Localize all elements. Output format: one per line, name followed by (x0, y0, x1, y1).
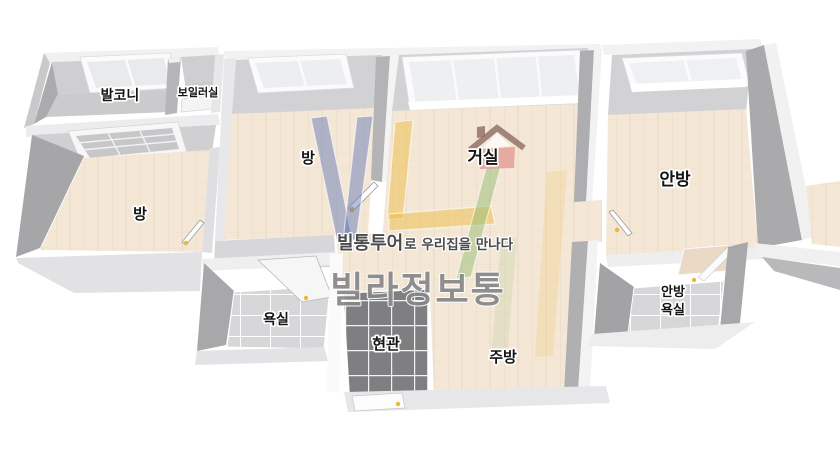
bathroom-door-handle (304, 296, 308, 300)
boiler-back-wall-face (181, 55, 215, 84)
boiler-room (165, 54, 224, 115)
label-bathroom: 욕실 (263, 312, 289, 328)
balcony-window-glass (87, 58, 170, 88)
label-entrance: 현관 (372, 335, 400, 353)
watermark-tagline: 빌통투어로 우리집을 만나다 (337, 233, 514, 254)
bedroom-left-room (16, 114, 220, 293)
bedroom-left-door-handle (184, 241, 188, 245)
label-bedroom-left: 방 (133, 205, 147, 223)
tagline-rest-part: 로 우리집을 만나다 (404, 236, 513, 253)
master-door-handle (615, 228, 619, 232)
label-bedroom-middle: 방 (301, 149, 315, 167)
label-master-bathroom-line1: 안방 (661, 284, 685, 300)
watermark-brand: 빌라정보통 (330, 270, 506, 311)
bedroom-middle-window-glass (255, 59, 347, 88)
entrance-door-handle (396, 402, 400, 406)
tagline-brand-part: 빌통투어 (337, 233, 403, 254)
floorplan-svg: 빌통투어로 우리집을 만나다 빌라정보통 발코니 보일러실 방 방 거실 안방 … (0, 0, 840, 472)
door-gap-floor (572, 200, 602, 242)
label-living-room: 거실 (467, 148, 498, 168)
label-master-bathroom-line2: 욕실 (661, 302, 685, 318)
label-master-bedroom: 안방 (659, 170, 691, 190)
entrance-door (352, 393, 405, 411)
master-bathroom-door-handle (692, 278, 696, 282)
floorplan-image: 빌통투어로 우리집을 만나다 빌라정보통 발코니 보일러실 방 방 거실 안방 … (0, 0, 840, 472)
label-kitchen: 주방 (489, 348, 517, 366)
label-balcony: 발코니 (101, 87, 140, 104)
label-boiler-room: 보일러실 (178, 85, 218, 99)
